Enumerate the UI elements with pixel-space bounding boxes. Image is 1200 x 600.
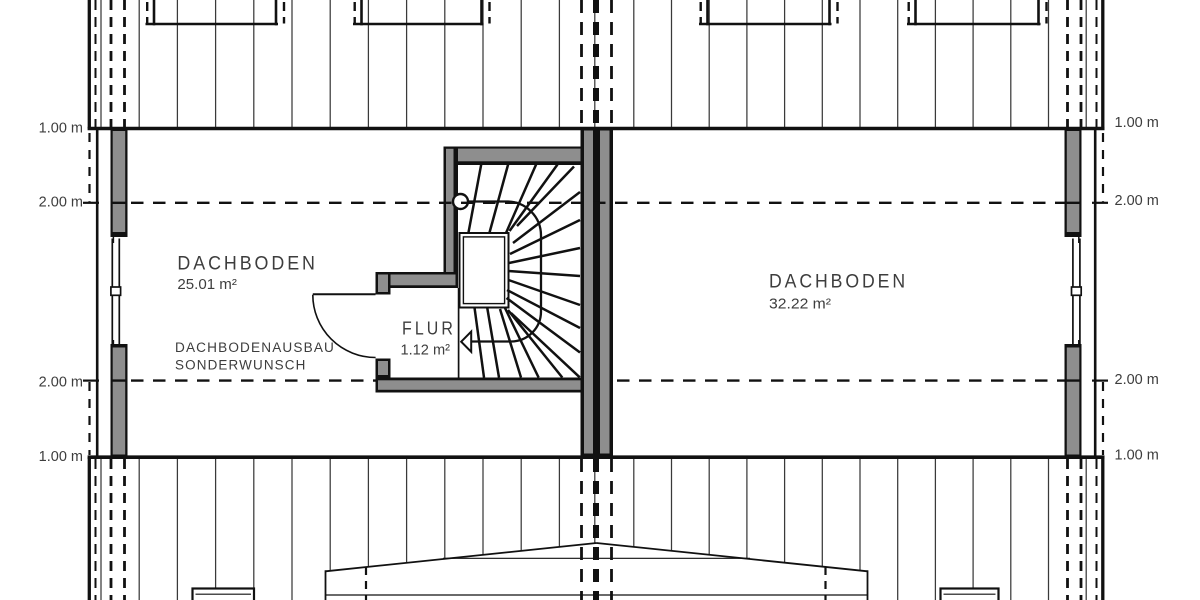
svg-text:1.00 m: 1.00 m [1115, 115, 1159, 131]
svg-text:1.00 m: 1.00 m [1115, 448, 1159, 464]
svg-text:DACHBODENAUSBAU: DACHBODENAUSBAU [175, 340, 335, 356]
svg-text:2.00 m: 2.00 m [1115, 193, 1159, 209]
svg-text:2.00 m: 2.00 m [39, 375, 83, 391]
svg-text:SONDERWUNSCH: SONDERWUNSCH [175, 358, 307, 374]
svg-text:FLUR: FLUR [402, 319, 456, 339]
svg-text:2.00 m: 2.00 m [1115, 372, 1159, 388]
svg-text:1.12 m²: 1.12 m² [401, 342, 451, 359]
svg-text:1.00 m: 1.00 m [39, 121, 83, 137]
svg-text:2.00 m: 2.00 m [39, 195, 83, 211]
svg-text:25.01 m²: 25.01 m² [177, 277, 237, 293]
svg-text:DACHBODEN: DACHBODEN [769, 271, 908, 293]
svg-text:DACHBODEN: DACHBODEN [177, 253, 318, 275]
svg-text:32.22 m²: 32.22 m² [769, 296, 831, 312]
svg-text:1.00 m: 1.00 m [39, 449, 83, 465]
